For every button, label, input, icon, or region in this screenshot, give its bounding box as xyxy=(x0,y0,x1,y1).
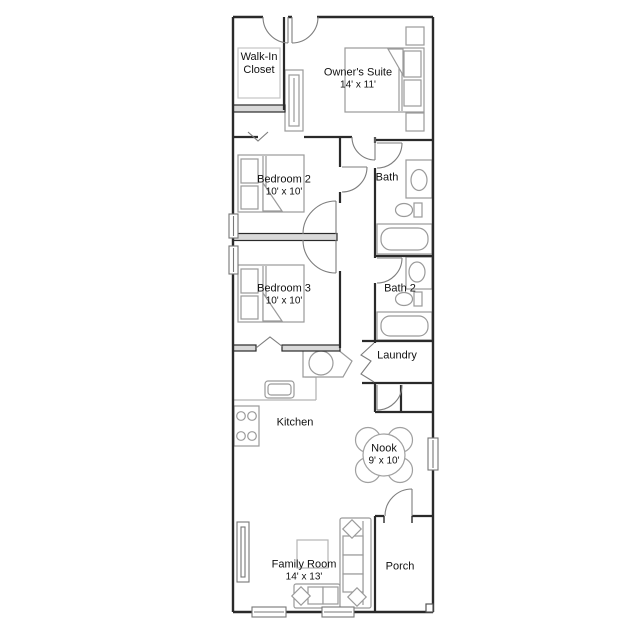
room-name: Porch xyxy=(386,561,415,573)
room-name: Laundry xyxy=(377,350,417,362)
room-name: Family Room xyxy=(272,559,337,572)
room-dimensions: 10' x 10' xyxy=(257,296,311,308)
bedroom3-entry-door xyxy=(256,337,283,348)
bath-vanity-sink xyxy=(406,160,432,198)
wardrobe-unit xyxy=(285,70,303,131)
floor-plan: Walk-In Closet Owner's Suite 14' x 11' B… xyxy=(0,0,639,639)
family-room-label: Family Room 14' x 13' xyxy=(272,559,337,584)
owners-suite-door xyxy=(292,17,318,43)
nightstand xyxy=(406,27,424,45)
bedroom2-label: Bedroom 2 10' x 10' xyxy=(257,174,311,199)
family-room-window-1 xyxy=(252,607,286,617)
room-name: Bath xyxy=(376,172,399,184)
room-name: Bath 2 xyxy=(384,283,416,295)
floor-plan-drawing xyxy=(0,0,639,639)
owners-suite-label: Owner's Suite 14' x 11' xyxy=(324,67,392,92)
bath2-door xyxy=(377,258,402,283)
bedroom2-window xyxy=(229,214,238,238)
suite-hall-door xyxy=(352,137,375,160)
peninsula-sink xyxy=(303,349,352,377)
bedroom3-label: Bedroom 3 10' x 10' xyxy=(257,283,311,308)
nightstand xyxy=(406,113,424,131)
room-dimensions: 14' x 13' xyxy=(272,572,337,584)
laundry-bifold-doors xyxy=(361,343,374,382)
room-name: Kitchen xyxy=(277,417,314,429)
room-dimensions: 10' x 10' xyxy=(257,187,311,199)
porch-entry-door xyxy=(385,489,412,516)
family-room-window-2 xyxy=(322,607,354,617)
kitchen-label: Kitchen xyxy=(277,417,314,430)
nook-label: Nook 9' x 10' xyxy=(368,443,399,468)
walk-in-closet-label: Walk-In Closet xyxy=(228,51,290,77)
bath-tub xyxy=(377,224,432,254)
bedroom3-window xyxy=(229,246,238,274)
laundry-label: Laundry xyxy=(377,350,417,363)
bedroom2-hall-door xyxy=(342,167,367,192)
bedroom2-door xyxy=(303,201,336,234)
room-name: Owner's Suite xyxy=(324,67,392,80)
family-room-side-window xyxy=(237,522,249,582)
bath-toilet xyxy=(396,203,423,217)
bath-door xyxy=(377,143,402,168)
porch-label: Porch xyxy=(386,561,415,574)
room-name: Bedroom 2 xyxy=(257,174,311,187)
bedroom3-door xyxy=(303,240,336,273)
hall-closet-door xyxy=(377,385,402,410)
bath2-label: Bath 2 xyxy=(384,283,416,296)
kitchen-sink xyxy=(265,381,294,398)
nook-window xyxy=(428,438,438,470)
room-dimensions: 9' x 10' xyxy=(368,456,399,468)
bath-label: Bath xyxy=(376,172,399,185)
room-name: Nook xyxy=(368,443,399,456)
porch-post xyxy=(426,604,433,612)
kitchen-stove xyxy=(234,406,259,446)
bath2-tub xyxy=(377,312,432,340)
room-dimensions: 14' x 11' xyxy=(324,80,392,92)
room-name: Bedroom 3 xyxy=(257,283,311,296)
room-name: Walk-In Closet xyxy=(241,51,278,76)
